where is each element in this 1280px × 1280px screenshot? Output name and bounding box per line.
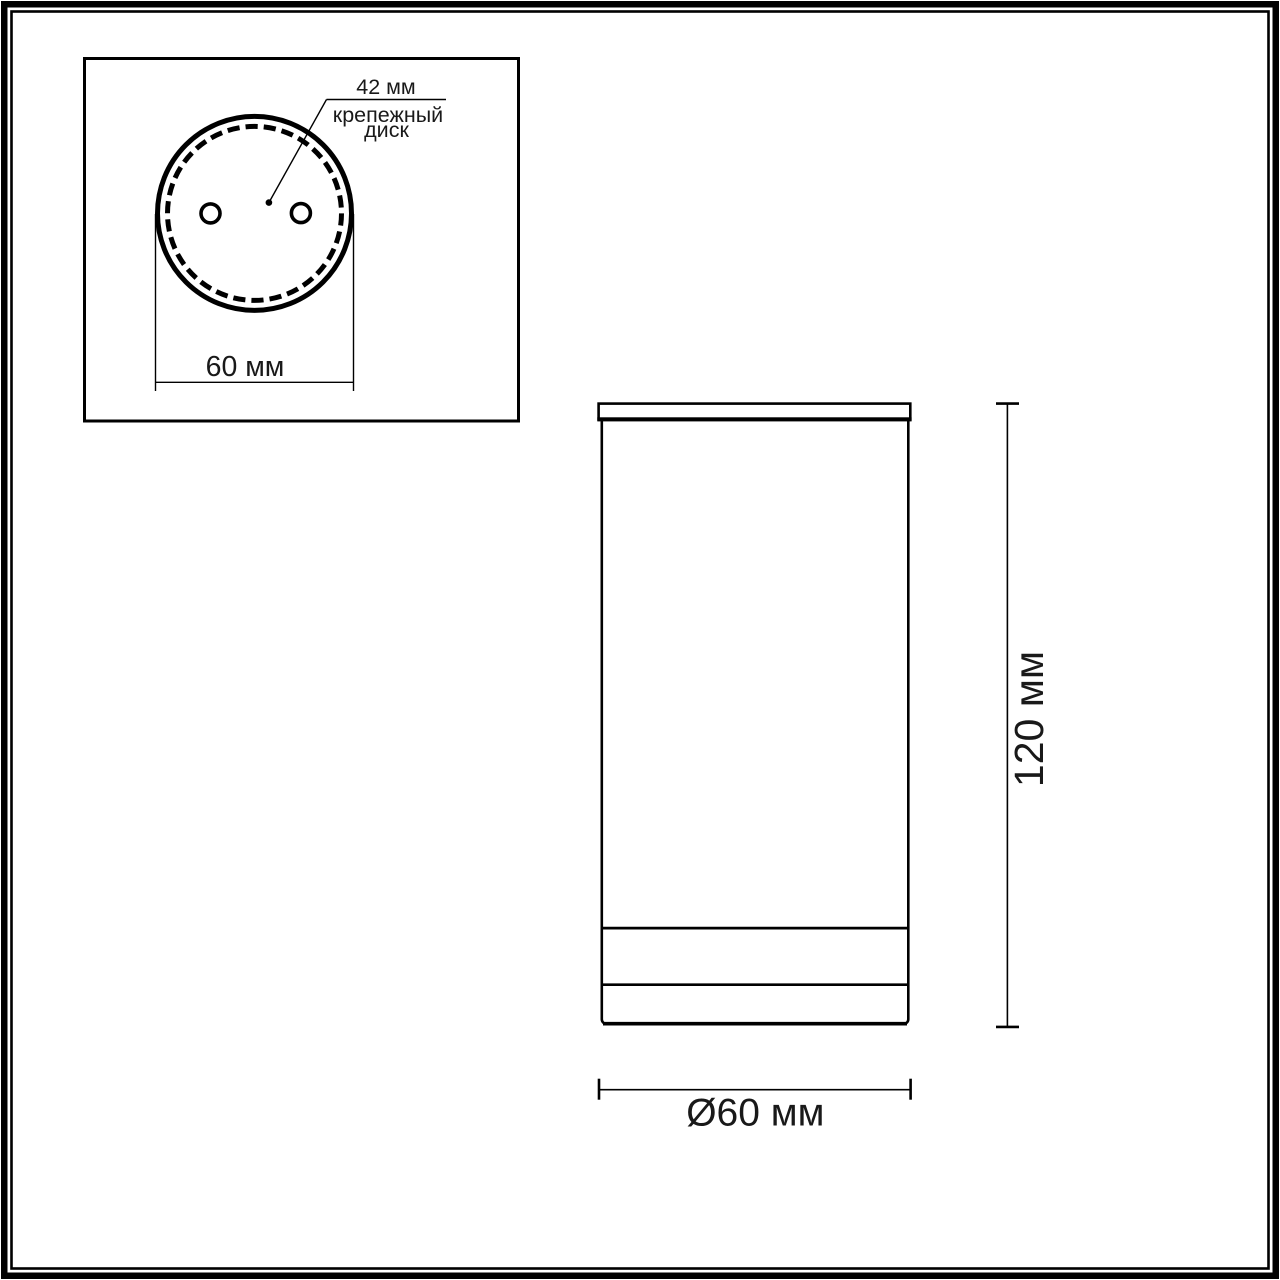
svg-text:Ø60 мм: Ø60 мм: [686, 1092, 824, 1135]
svg-text:42 мм: 42 мм: [356, 75, 415, 99]
svg-text:диск: диск: [364, 118, 409, 142]
svg-text:120 мм: 120 мм: [1006, 651, 1052, 787]
svg-text:60 мм: 60 мм: [206, 351, 285, 383]
